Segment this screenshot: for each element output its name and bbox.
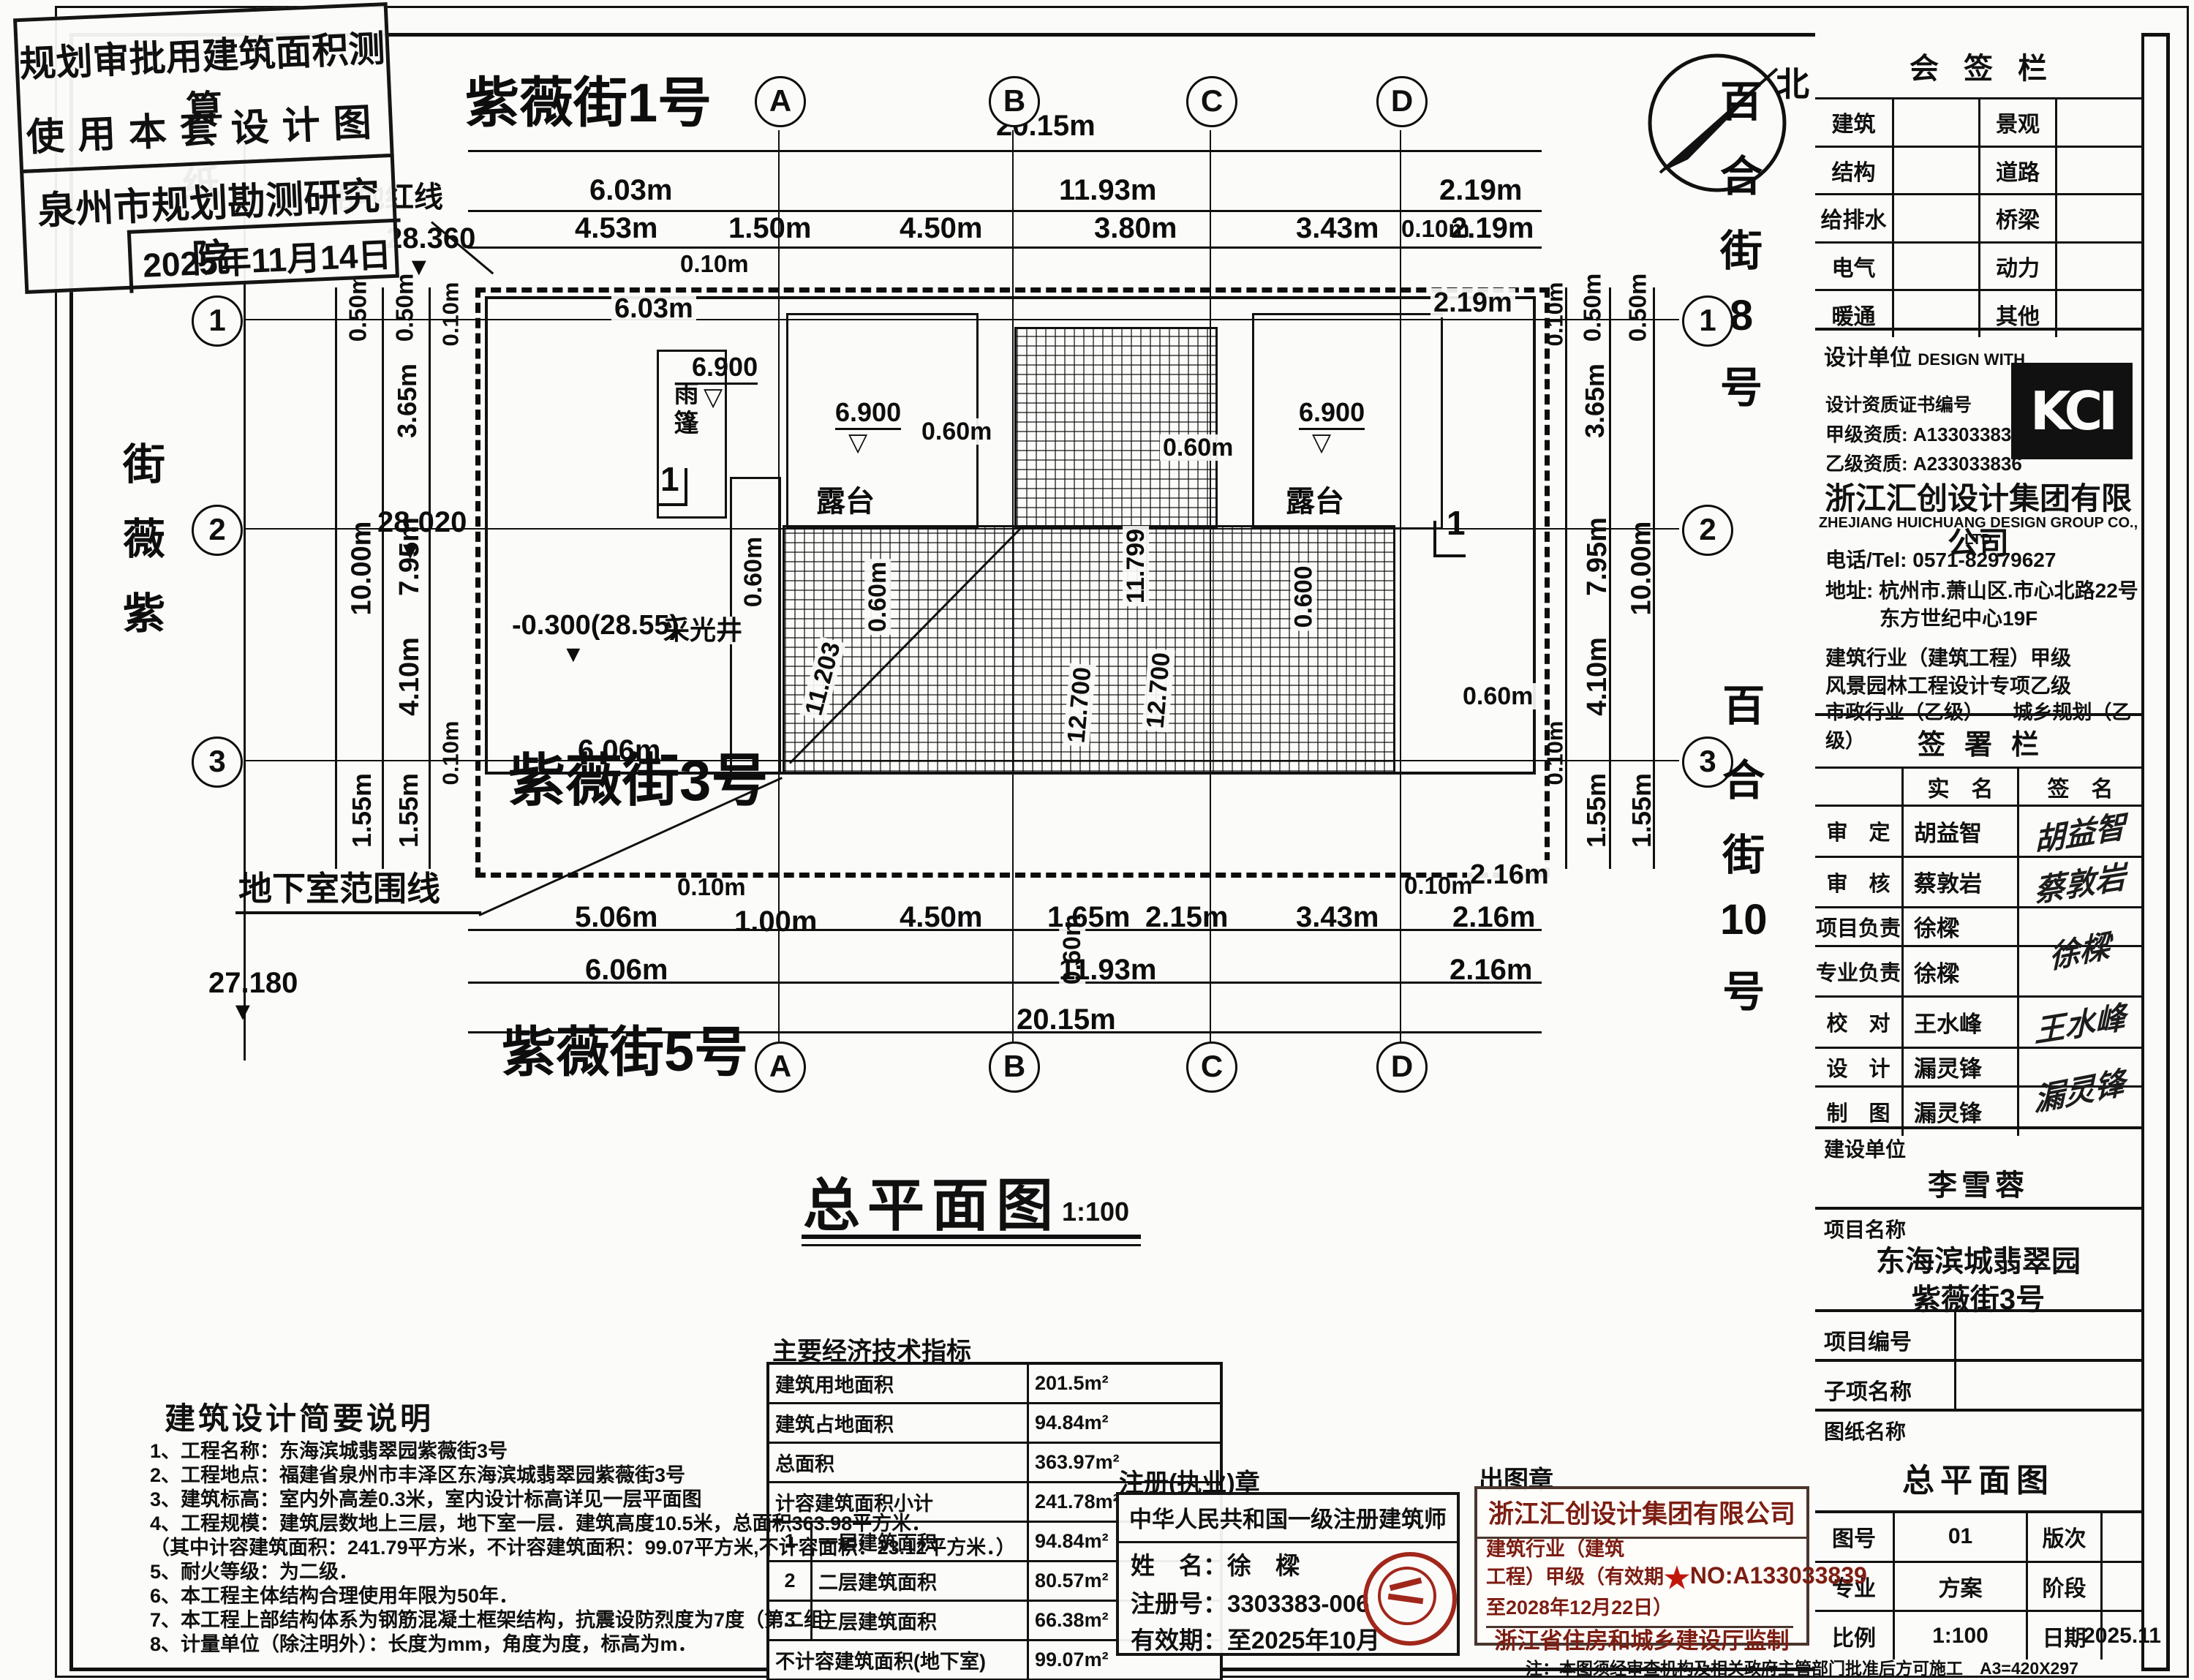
street-ziwei-1: 紫薇街1号 [465,76,712,130]
qianshu-role: 专业负责 [1815,945,1901,995]
dim-label: 4.10m [1583,637,1611,716]
note-line: 4、工程规模：建筑层数地上三层，地下室一层．建筑高度10.5米，总面积363.9… [150,1512,1016,1536]
builder-label: 建设单位 [1824,1134,1906,1163]
axis-bubble-2: 2 [1682,505,1733,556]
meta-value: 方案 [1893,1561,2026,1611]
qianshu-role: 校 对 [1815,995,1901,1046]
label-en: DESIGN WITH [1918,350,2025,369]
street-char: 合 [1720,142,1763,203]
huiqian-label: 道路 [1978,146,2055,194]
level-mark: ▽ [704,385,723,410]
huiqian-label: 景观 [1978,97,2055,146]
dim-label: 10.00m [347,521,375,616]
qualification-2: 风景园林工程设计专项乙级 [1825,670,2071,699]
huiqian-label: 建筑 [1815,97,1892,146]
meta-label: 比例 [1815,1610,1893,1660]
street-char: 10 [1720,895,1768,944]
sub-item-section: 子项名称 [1815,1359,2141,1409]
field-label: 注册号： [1131,1590,1227,1617]
signature: 蔡敦岩 [2035,852,2127,911]
drawing-scale: 1:100 [1062,1197,1129,1227]
huiqian-label: 桥梁 [1978,193,2055,241]
issue-chop-box: 浙江汇创设计集团有限公司 建筑行业（建筑 工程）甲级（有效期★NO:A13303… [1474,1486,1809,1646]
title-block: 会签栏 建筑景观结构道路给排水桥梁电气动力暖通其他 设计单位 DESIGN WI… [1815,33,2144,1671]
level-value: -0.300(28.55) [512,611,679,639]
level-value: 6.900 [1299,399,1365,430]
notes-title: 建筑设计简要说明 [165,1394,434,1439]
qianshu-section: 签署栏 实 名签 名审 定胡益智胡益智审 核蔡敦岩蔡敦岩项目负责徐樑专业负责徐樑… [1815,713,2141,1126]
street-baihe-8: 百合街8号 [1720,67,1763,415]
huiqian-sign-cell [2055,193,2141,241]
divider [1954,1312,1956,1362]
dim-label: 3.80m [1094,214,1177,243]
architect-name: 姓 名：徐 樑 [1131,1546,1300,1581]
meta-value: 1:100 [1893,1610,2026,1660]
project-no-section: 项目编号 [1815,1309,2141,1359]
qianshu-signature: 胡益智 [2017,805,2141,855]
dim-label: 2.15m [1145,903,1228,932]
divider [1954,1362,1956,1412]
street-char: 号 [1720,353,1763,415]
huiqian-sign-cell [2055,241,2141,290]
dim-label: 1.50m [728,214,811,243]
dim-label: 0.10m [677,875,746,899]
roof-level: 11.799 [1123,526,1149,606]
street-char: 街 [123,430,165,491]
axis-bubble-B: B [989,76,1040,127]
huiqian-label: 动力 [1978,241,2055,290]
dim-label: 6.03m [589,176,672,205]
street-char: 紫 [123,579,165,641]
dim-label: 0.600 [1291,562,1317,630]
qianshu-signature: 蔡敦岩 [2017,856,2141,906]
econ-label: 建筑用地面积 [769,1365,1027,1402]
roof-level: 12.700 [1063,663,1096,747]
chop-line: 建筑行业（建筑 [1486,1533,1624,1562]
dim-label: 0.50m [1580,274,1604,342]
signature: 胡益智 [2035,802,2127,861]
street-char: 街 [1720,216,1763,278]
huiqian-section: 会签栏 建筑景观结构道路给排水桥梁电气动力暖通其他 [1815,33,2141,328]
dim-label: 4.53m [575,214,657,243]
dim-label: 3.65m [394,364,421,438]
note-line: 6、本工程主体结构合理使用年限为50年． [150,1584,1016,1608]
huiqian-sign-cell [2055,146,2141,194]
dim-label: 2.16m [1467,860,1552,889]
dim-label: 2.19m [1430,288,1515,317]
econ-label: 建筑占地面积 [769,1402,1027,1442]
econ-row: 建筑用地面积201.5m² [769,1365,1220,1402]
company-address: 地址: 杭州市.萧山区.市心北路22号 [1825,575,2138,604]
dim-label: 0.60m [919,418,995,445]
builder-section: 建设单位 李雪蓉 [1815,1126,2141,1207]
cred-title: 设计资质证书编号 [1825,391,1972,417]
dim-label: 10.00m [1627,521,1655,616]
dim-label: 0.10m [1404,873,1473,897]
field-value: 至2025年10月 [1227,1627,1380,1654]
qianshu-name: 徐樑 [1901,906,2017,945]
level-mark: ▼ [562,642,585,666]
qianshu-name-header: 实 名 [1901,766,2017,805]
dim-label: 1.55m [396,773,422,848]
red-seal-icon [1363,1552,1457,1646]
field-value: 3303383-006 [1227,1590,1370,1617]
dim-label: 3.43m [1296,214,1379,243]
sheet-name-label: 图纸名称 [1824,1416,1906,1445]
axis-bubble-A: A [755,76,806,127]
level-value: 6.900 [835,399,901,430]
dim-label: 1.55m [349,773,375,848]
field-value: 徐 樑 [1227,1552,1300,1579]
approval-stamp-box: 规划审批用建筑面积测算 使用本套设计图纸 [13,2,394,173]
dim-label: 0.60m [740,534,766,610]
qianshu-title: 签署栏 [1815,716,2141,766]
note-line: 7、本工程上部结构体系为钢筋混凝土框架结构，抗震设防烈度为7度（第二组） [150,1608,1016,1632]
dim-label: 7.95m [396,517,423,596]
huiqian-title: 会签栏 [1815,33,2141,97]
dim-label: 0.60m [864,559,891,635]
dim-label: 0.50m [392,274,416,342]
title-underline [802,1235,1141,1239]
huiqian-sign-cell [1892,241,1978,290]
huiqian-grid: 建筑景观结构道路给排水桥梁电气动力暖通其他 [1815,97,2141,337]
qianshu-name: 蔡敦岩 [1901,856,2017,906]
dim-label: 4.50m [900,903,982,932]
qianshu-sign-header: 签 名 [2017,766,2141,805]
dim-label: 1.00m [734,907,817,936]
chop-text: 工程）甲级（有效期 [1486,1566,1664,1588]
signature: 王水峰 [2035,992,2127,1052]
note-line: 8、计量单位（除注明外）：长度为mm，角度为度，标高为m． [150,1632,1016,1657]
stamp-date-box: 2025年11月14日 [127,219,403,293]
meta-label: 阶段 [2026,1561,2100,1611]
qianshu-role: 项目负责 [1815,906,1901,945]
dim-label: 6.03m [611,294,696,323]
axis-bubble-3: 3 [192,737,243,788]
dim-label: 20.15m [1017,1005,1116,1034]
dim-label: 2.19m [1451,214,1534,243]
qianshu-role: 审 定 [1815,805,1901,855]
dim-label: 0.10m [439,282,461,347]
qianshu-name: 徐樑 [1901,945,2017,995]
registration-number: 注册号：3303383-006 [1131,1584,1370,1619]
project-name-1: 东海滨城翡翠园 [1815,1238,2141,1280]
terrace-label: 露台 [816,487,875,516]
qianshu-name: 王水峰 [1901,995,2017,1046]
level-mark: ▼ [230,999,255,1024]
axis-bubble-D: D [1376,1041,1428,1093]
street-char: 8 [1730,291,1753,340]
qianshu-corner [1815,766,1901,805]
dim-label: 0.10m [439,721,461,786]
dim-label: 11.93m [1059,176,1156,205]
econ-value: 201.5m² [1027,1365,1220,1402]
huiqian-label: 结构 [1815,146,1892,194]
street-ziwei-vertical: 街薇紫 [123,430,165,641]
chop-cert-no: NO:A133033839 [1690,1562,1867,1589]
huiqian-sign-cell [1892,146,1978,194]
field-label: 有效期： [1131,1627,1227,1654]
street-char: 街 [1722,821,1765,882]
dim-label: 2.16m [1450,955,1532,984]
company-logo: KCI [2011,363,2133,459]
note-line: 3、建筑标高：室内外高差0.3米，室内设计标高详见一层平面图 [150,1488,1016,1512]
axis-bubble-C: C [1186,76,1237,127]
street-char: 百 [1722,671,1765,733]
dim-label: 0.10m [680,252,749,276]
section-mark: 1 [660,462,679,496]
canopy-label: 雨篷 [671,380,696,439]
north-label: 北 [1776,67,1809,101]
note-line: （其中计容建筑面积：241.79平方米，不计容建筑面积：99.07平方米,不计容… [150,1536,1016,1560]
chop-supervisor: 浙江省住房和城乡建设厅监制 [1477,1622,1806,1655]
approval-stamp-group: 规划审批用建筑面积测算 使用本套设计图纸 泉州市规划勘测研究院 2025年11月… [13,2,399,294]
note-line: 5、耐火等级：为二级． [150,1560,1016,1584]
chop-company: 浙江汇创设计集团有限公司 [1477,1493,1806,1539]
dim-label: 11.93m [1059,955,1156,984]
project-section: 项目名称 东海滨城翡翠园 紫薇街3号 [1815,1207,2141,1309]
dim-label: 0.10m [1543,282,1566,347]
registration-stamp-box: 中华人民共和国一级注册建筑师 姓 名：徐 樑 注册号：3303383-006 有… [1116,1492,1460,1656]
dim-label: 5.06m [575,903,657,932]
qianshu-role: 设 计 [1815,1047,1901,1085]
company-address2: 东方世纪中心19F [1880,603,2037,632]
meta-value: 01 [1893,1513,2026,1561]
dim-label: 6.06m [578,736,660,765]
design-unit-section: 设计单位 DESIGN WITH 设计资质证书编号 甲级资质: A1330338… [1815,328,2141,713]
note-line: 2、工程地点：福建省泉州市丰泽区东海滨城翡翠园紫薇街3号 [150,1464,1016,1488]
street-char: 百 [1720,67,1763,129]
dim-label: 3.65m [1582,364,1608,438]
dim-label: 1.65m [1047,903,1130,932]
econ-value: 94.84m² [1027,1402,1220,1442]
dim-label: 0.60m [1160,434,1236,461]
drawing-title: 总平面图 [803,1160,1060,1242]
huiqian-label: 电气 [1815,241,1892,290]
design-unit-label: 设计单位 DESIGN WITH [1824,339,2025,372]
dim-label: 7.95m [1583,517,1611,596]
street-ziwei-5: 紫薇街5号 [502,1025,748,1080]
meta-value: 2025.11 [2100,1610,2141,1660]
street-char: 号 [1722,957,1765,1019]
builder-value: 李雪蓉 [1815,1161,2141,1204]
level-value: 6.900 [692,354,758,385]
axis-bubble-A: A [755,1041,806,1093]
sheet-name-value: 总平面图 [1815,1454,2141,1501]
survey-institute-stamp-box: 泉州市规划勘测研究院 2025年11月14日 [20,154,399,294]
dim-label: 0.10m [1543,721,1566,786]
dim-label: 1.55m [1583,773,1610,848]
qianshu-signature: 徐樑 [2017,945,2141,995]
sheet-name-section: 图纸名称 总平面图 [1815,1409,2141,1510]
dim-label: 2.19m [1439,176,1522,205]
cred-a: 甲级资质: A133033839 [1825,420,2022,447]
notes-list: 1、工程名称：东海滨城翡翠园紫薇街3号2、工程地点：福建省泉州市丰泽区东海滨城翡… [150,1439,1016,1657]
qianshu-name: 胡益智 [1901,805,2017,855]
axis-bubble-1: 1 [192,295,243,347]
star-icon: ★ [1664,1562,1690,1594]
dim-label: 0.50m [345,274,369,342]
axis-bubble-C: C [1186,1041,1237,1093]
level-value: 27.180 [208,968,298,998]
huiqian-sign-cell [2055,97,2141,146]
huiqian-label: 给排水 [1815,193,1892,241]
cred-b: 乙级资质: A233033836 [1825,449,2022,476]
section-mark: 1 [1447,506,1466,540]
note-line: 1、工程名称：东海滨城翡翠园紫薇街3号 [150,1439,1016,1464]
sheet: 紫薇街1号紫薇街3号紫薇街5号北用地红线地下室范围线采光井雨篷露台露台116.9… [0,0,2194,1680]
roof-level: 12.700 [1142,649,1175,733]
dim-label: 4.50m [900,214,982,243]
meta-value [2100,1513,2141,1561]
dim-label: 2.16m [1452,903,1535,932]
stamp-line: 中华人民共和国一级注册建筑师 [1119,1501,1457,1543]
meta-label: 图号 [1815,1513,1893,1561]
level-mark: ▽ [848,430,867,455]
econ-row: 建筑占地面积94.84m² [769,1402,1220,1442]
dim-label: 0.60m [1460,683,1536,709]
qualification-1: 建筑行业（建筑工程）甲级 [1825,642,2071,671]
terrace-label: 露台 [1286,487,1344,516]
level-mark: ▽ [1312,430,1331,455]
qianshu-name: 漏灵锋 [1901,1047,2017,1085]
street-baihe-10: 百合街10号 [1720,671,1768,1019]
qianshu-role: 审 核 [1815,856,1901,906]
dim-label: 4.10m [396,637,423,716]
axis-bubble-B: B [989,1041,1040,1093]
qianshu-signature: 王水峰 [2017,995,2141,1046]
street-char: 薇 [123,505,165,566]
meta-label: 版次 [2026,1513,2100,1561]
project-no-label: 项目编号 [1824,1324,1912,1356]
dim-label: 1.55m [1629,773,1655,848]
basement-extent-label: 地下室范围线 [238,872,440,905]
huiqian-sign-cell [1892,97,1978,146]
chop-line: 工程）甲级（有效期★NO:A133033839 [1486,1561,1867,1595]
axis-bubble-D: D [1376,76,1428,127]
roof-level: 11.203 [799,636,845,721]
meta-value [2100,1561,2141,1611]
huiqian-sign-cell [1892,193,1978,241]
validity: 有效期：至2025年10月 [1131,1621,1380,1656]
bottom-note: 注：本图须经审查机构及相关政府主管部门批准后方可施工 A3=420X297 [1526,1654,2176,1679]
axis-bubble-2: 2 [192,505,243,556]
street-char: 合 [1722,746,1765,807]
dim-label: 6.06m [585,955,668,984]
sub-item-label: 子项名称 [1824,1374,1912,1406]
company-tel: 电话/Tel: 0571-82979627 [1825,544,2056,573]
field-label: 姓 名： [1131,1552,1227,1579]
title-underline [802,1244,1141,1246]
qianshu-grid: 实 名签 名审 定胡益智胡益智审 核蔡敦岩蔡敦岩项目负责徐樑专业负责徐樑徐樑校 … [1815,766,2141,1136]
label-cn: 设计单位 [1824,346,1912,370]
dim-label: 0.50m [1625,274,1649,342]
dim-label: 3.43m [1296,903,1379,932]
